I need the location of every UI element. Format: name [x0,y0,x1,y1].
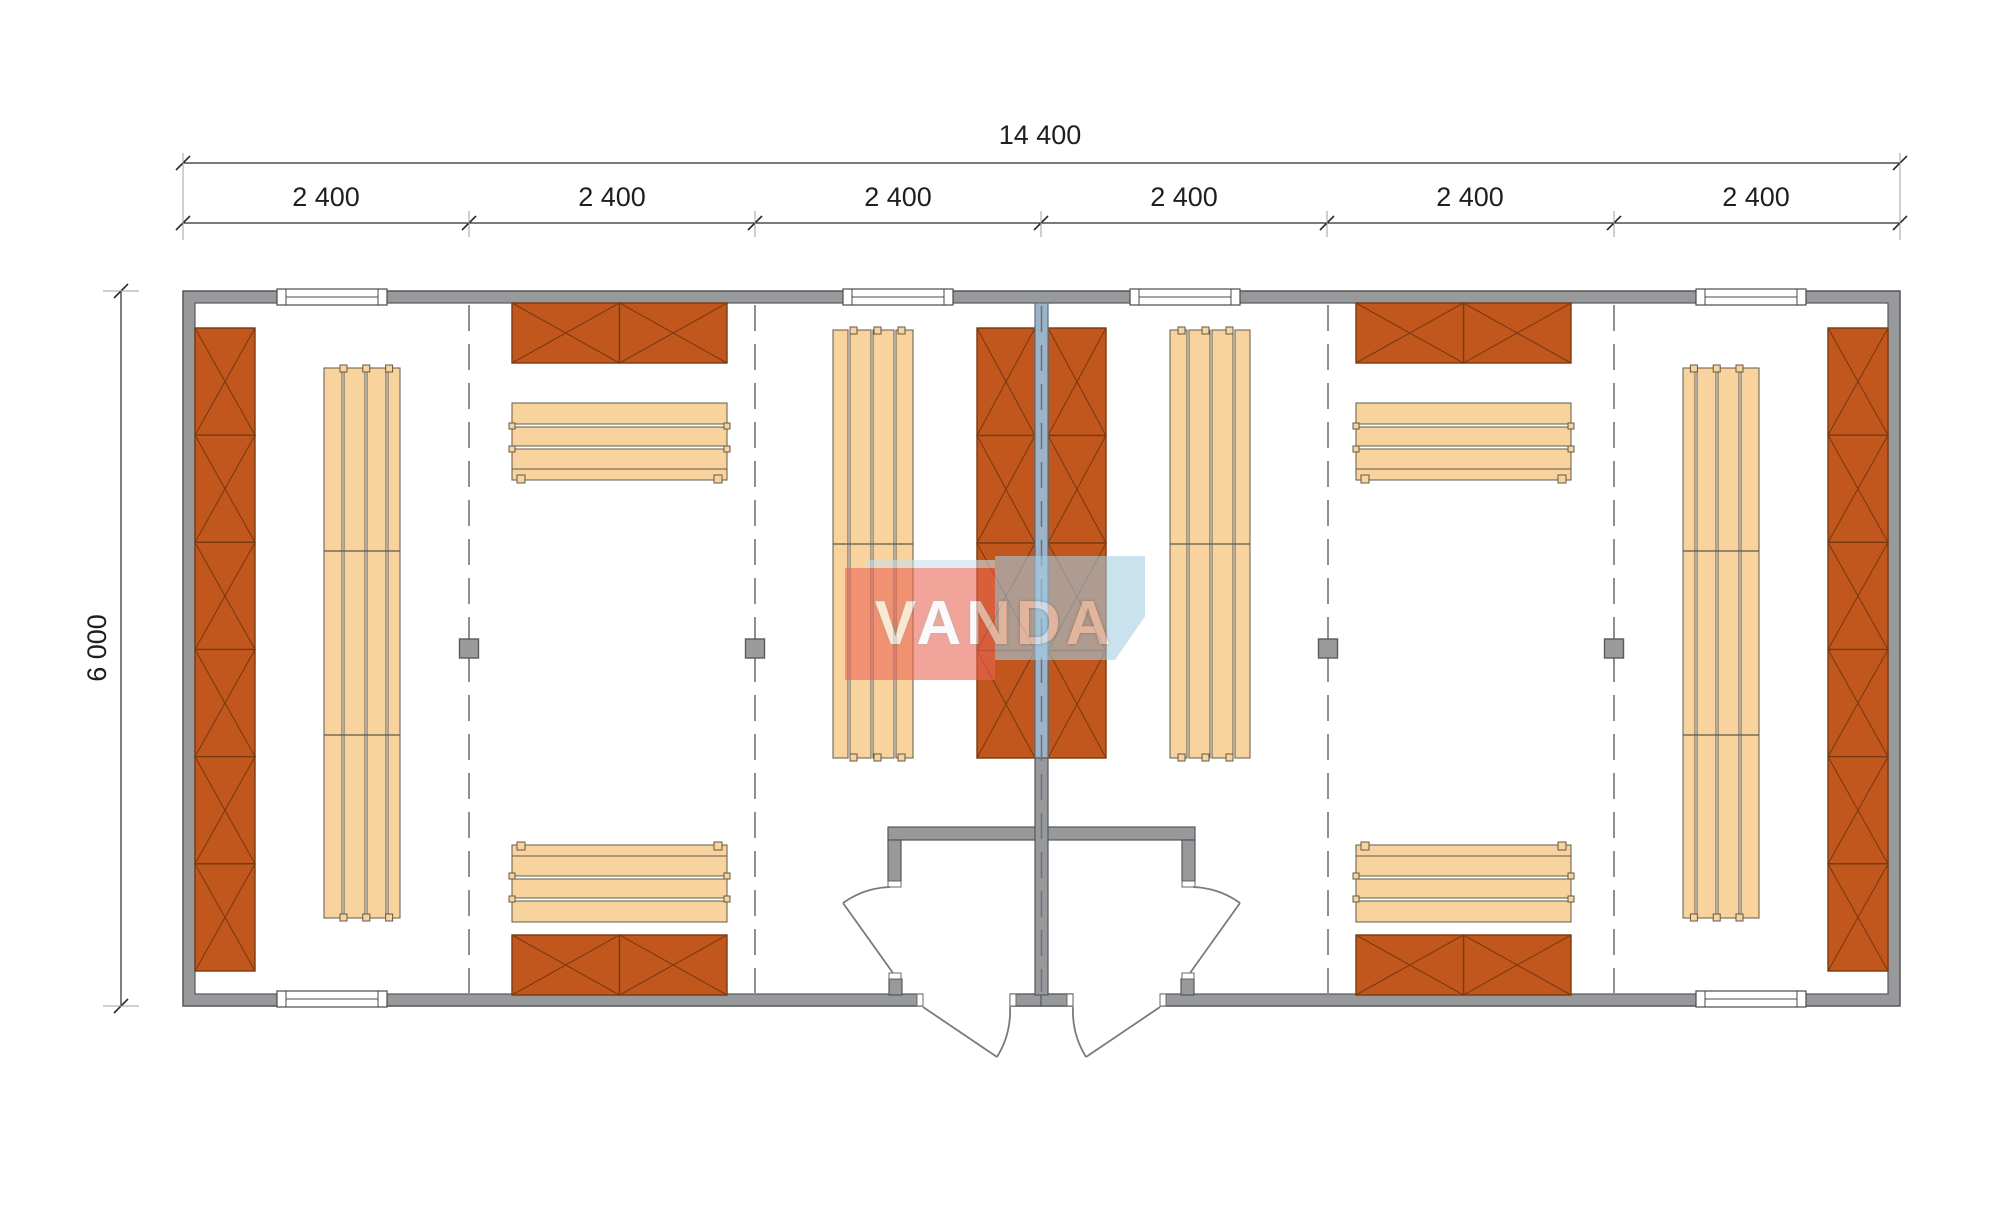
center-partition-upper [1035,303,1048,758]
window [277,991,387,1007]
floor-plan-page: 14 400 2 400 2 400 2 400 2 400 2 400 2 4… [0,0,2000,1226]
top-bench [509,403,730,483]
window [843,289,953,305]
exterior-door-leaf [923,1007,997,1057]
overall-width-dimension: 14 400 [965,120,1115,150]
watermark-text: VANDA [851,588,1139,659]
wall-side-bench-group [324,365,400,921]
center-locker-strip [977,328,1035,758]
center-side-bench-group [833,327,913,761]
exterior-door-swing [997,1007,1010,1057]
module-width-dimension-4: 2 400 [1144,182,1224,212]
top-locker-box [512,303,727,363]
window [277,289,387,305]
module-width-dimension-1: 2 400 [286,182,366,212]
watermark-logo: VANDA [843,556,1147,688]
module-width-dimension-3: 2 400 [858,182,938,212]
module-width-dimension-5: 2 400 [1430,182,1510,212]
column [746,639,765,658]
module-width-dimension-6: 2 400 [1716,182,1796,212]
bottom-locker-box [512,935,727,995]
wall-locker-strip [195,328,255,971]
module-width-dimension-2: 2 400 [572,182,652,212]
overall-height-dimension: 6 000 [82,608,112,688]
bottom-bench [509,842,730,922]
column [460,639,479,658]
